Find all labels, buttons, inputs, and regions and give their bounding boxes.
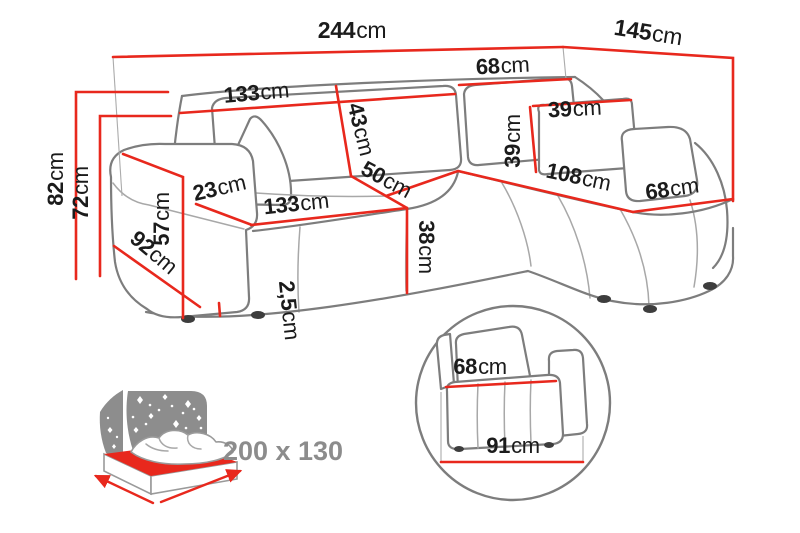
label-backrest-right-width: 68cm	[475, 52, 530, 80]
label-pillow-height: 39cm	[500, 114, 525, 168]
night-sky-back-layer	[100, 390, 123, 462]
armrest-detail-view: 68cm 91cm	[416, 306, 610, 500]
label-backrest-top-height: 72cm	[68, 166, 93, 220]
sleeping-size-label: 200 x 130	[223, 436, 343, 466]
detail-leg-back	[544, 442, 554, 448]
label-total-depth: 145cm	[612, 14, 684, 50]
diagram-canvas: 244cm 145cm 68cm 133cm 43cm 39cm 39cm 82…	[0, 0, 800, 533]
label-detail-base-depth: 91cm	[486, 433, 540, 458]
sofa-right-side-edge	[695, 143, 727, 268]
sofa-legs	[181, 282, 717, 323]
dim-line-leg-height	[219, 303, 220, 316]
sleeping-function-icon	[96, 390, 240, 503]
detail-leg-front	[454, 446, 464, 452]
extension-line-corner	[563, 47, 566, 79]
label-leg-height: 2,5cm	[274, 279, 305, 341]
label-detail-seat-depth: 68cm	[453, 354, 507, 379]
detail-back-panel	[437, 334, 454, 389]
label-pillow-width: 39cm	[547, 95, 602, 123]
label-total-height: 82cm	[43, 152, 68, 206]
sofa-dimensions-diagram: 244cm 145cm 68cm 133cm 43cm 39cm 39cm 82…	[0, 0, 800, 533]
label-total-width: 244cm	[318, 17, 387, 43]
label-seat-height: 38cm	[414, 220, 439, 274]
